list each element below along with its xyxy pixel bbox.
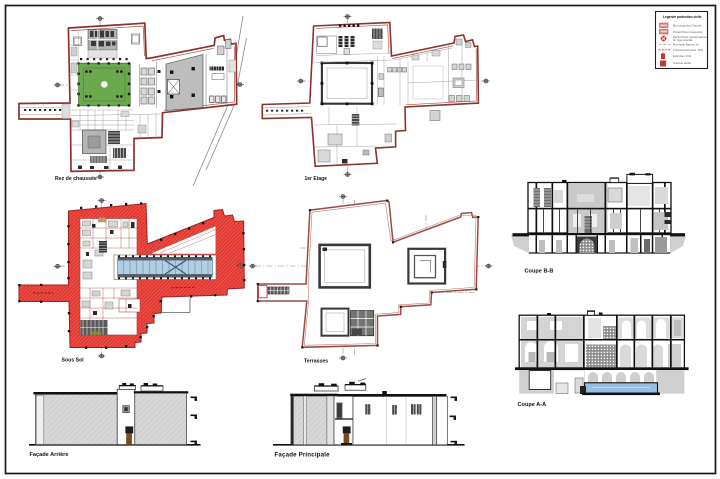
svg-text:Terrasses: Terrasses — [304, 359, 328, 365]
svg-text:Légende protection civile: Légende protection civile — [663, 15, 702, 19]
svg-text:Cheminement évac. (SS): Cheminement évac. (SS) — [673, 48, 703, 52]
svg-text:Portail (Porte coupe-feu): Portail (Porte coupe-feu) — [673, 30, 702, 34]
svg-text:Mur écran flamme 1h: Mur écran flamme 1h — [673, 43, 699, 47]
svg-text:Mur coupe-feu 2 heures: Mur coupe-feu 2 heures — [673, 24, 702, 28]
svg-text:du type incendie: du type incendie — [673, 38, 693, 42]
svg-text:Façade Arrière: Façade Arrière — [30, 452, 69, 458]
svg-text:1er Etage: 1er Etage — [305, 176, 328, 182]
svg-text:Sous Sol: Sous Sol — [62, 358, 85, 364]
svg-text:Colonne sèche: Colonne sèche — [673, 61, 691, 65]
svg-text:Extincteur CO2: Extincteur CO2 — [673, 54, 692, 58]
svg-text:Coupe A-A: Coupe A-A — [518, 402, 547, 408]
svg-text:Façade Principale: Façade Principale — [275, 452, 331, 459]
svg-text:Rez de chaussée: Rez de chaussée — [55, 176, 97, 182]
svg-text:Coupe B-B: Coupe B-B — [525, 269, 554, 275]
